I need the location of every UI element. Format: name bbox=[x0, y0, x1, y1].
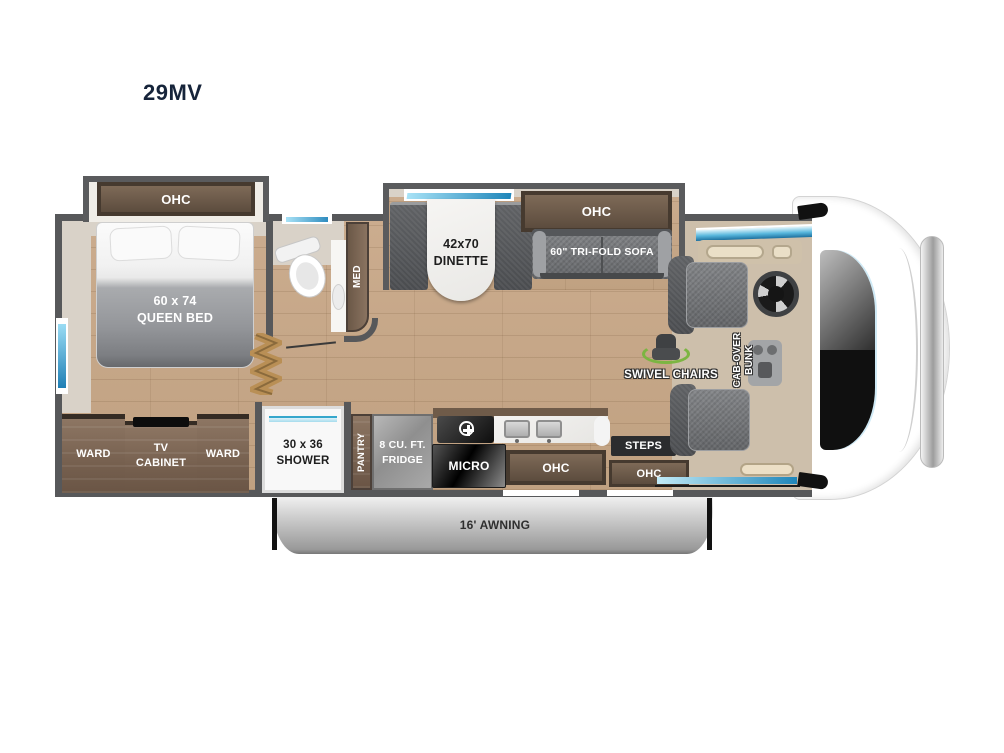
bottom-window-gap bbox=[607, 490, 673, 496]
kitchen-ohc: OHC bbox=[506, 450, 606, 485]
dinette-bench bbox=[390, 202, 428, 290]
bed-size-label: 60 x 74 bbox=[96, 293, 254, 310]
sofa-label: 60" TRI-FOLD SOFA bbox=[532, 246, 672, 258]
floor-plan: 16' AWNING OHC 60 x 74 QUEEN BED MED bbox=[0, 0, 1004, 753]
bed-label: 60 x 74 QUEEN BED bbox=[96, 293, 254, 327]
bathroom-left-wall bbox=[266, 221, 273, 341]
bathroom-sink-icon bbox=[332, 284, 345, 310]
floorplan-title: 29MV bbox=[143, 80, 202, 106]
entry-step-window bbox=[657, 477, 797, 484]
fridge-line2: FRIDGE bbox=[372, 453, 433, 468]
tv-cabinet-label: TV CABINET bbox=[125, 441, 197, 471]
wardrobe-right-label: WARD bbox=[197, 448, 249, 460]
dinette-size-label: 42x70 bbox=[427, 236, 495, 253]
entry-door-panel bbox=[740, 463, 794, 476]
swivel-chair-icon bbox=[640, 332, 692, 368]
cab-over-line2: BUNK bbox=[744, 322, 756, 398]
counter-end-cap bbox=[594, 416, 610, 446]
awning-end-cap bbox=[272, 498, 277, 550]
windshield-upper bbox=[820, 250, 875, 350]
steering-wheel-icon bbox=[753, 271, 799, 317]
windshield bbox=[820, 250, 875, 450]
entry-step-edge bbox=[655, 485, 800, 487]
shower-size-label: 30 x 36 bbox=[262, 437, 344, 453]
sink-basin-icon bbox=[504, 420, 530, 438]
sofa-ohc-label: OHC bbox=[582, 204, 612, 219]
tv-cabinet-line1: TV bbox=[125, 441, 197, 456]
wardrobe-left-label: WARD bbox=[62, 448, 125, 460]
bedroom-window-icon bbox=[56, 318, 68, 394]
bathroom-window-icon bbox=[282, 214, 332, 224]
med-label: MED bbox=[348, 224, 367, 330]
pantry: PANTRY bbox=[351, 414, 372, 490]
tv-cabinet-line2: CABINET bbox=[125, 456, 197, 471]
awning-label: 16' AWNING bbox=[430, 518, 560, 532]
bed-pillow bbox=[109, 225, 173, 261]
shower-wall-right bbox=[344, 402, 351, 493]
kitchen-ohc-label: OHC bbox=[542, 461, 569, 475]
awning-end-cap bbox=[707, 498, 712, 550]
bedroom-ohc-label: OHC bbox=[161, 192, 191, 207]
dinette-name-label: DINETTE bbox=[427, 253, 495, 270]
sofa-ohc: OHC bbox=[521, 191, 672, 232]
med-cabinet: MED bbox=[346, 222, 369, 332]
fridge-label: 8 CU. FT. FRIDGE bbox=[372, 438, 433, 468]
kitchen-sink-counter bbox=[494, 416, 608, 443]
steps-label: STEPS bbox=[611, 440, 676, 452]
swivel-chairs-label: SWIVEL CHAIRS bbox=[613, 369, 729, 381]
bedroom-ohc: OHC bbox=[97, 182, 255, 216]
shower-name-label: SHOWER bbox=[262, 453, 344, 469]
front-bumper bbox=[920, 236, 944, 468]
cab-over-bunk-label: CAB-OVER BUNK bbox=[716, 322, 772, 398]
pantry-label: PANTRY bbox=[353, 416, 370, 488]
cab-over-line1: CAB-OVER bbox=[732, 322, 744, 398]
micro-label: MICRO bbox=[432, 459, 506, 473]
cooktop bbox=[437, 416, 494, 443]
dinette-label: 42x70 DINETTE bbox=[427, 236, 495, 270]
shower-wall-left bbox=[255, 402, 262, 493]
windshield-lower bbox=[820, 350, 875, 450]
fridge-line1: 8 CU. FT. bbox=[372, 438, 433, 453]
bottom-window-gap bbox=[503, 490, 579, 496]
tv-icon bbox=[133, 417, 189, 427]
sink-basin-icon bbox=[536, 420, 562, 438]
shower-label: 30 x 36 SHOWER bbox=[262, 437, 344, 469]
cooktop-burner-icon bbox=[459, 421, 474, 436]
bed-name-label: QUEEN BED bbox=[96, 310, 254, 327]
accordion-door-icon bbox=[250, 333, 282, 395]
cab-hood-line bbox=[880, 248, 918, 452]
bed-pillow bbox=[177, 225, 241, 261]
